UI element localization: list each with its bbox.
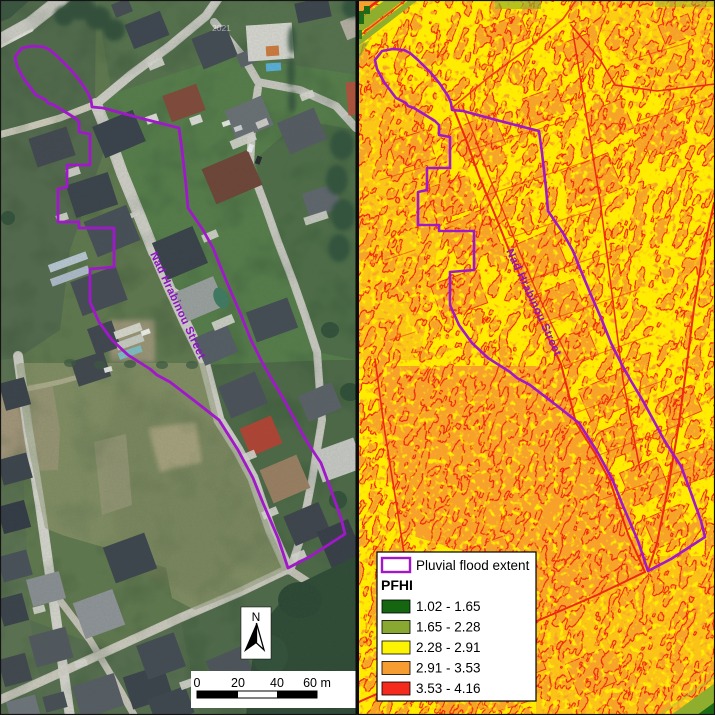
svg-text:2.91 - 3.53: 2.91 - 3.53 — [416, 661, 481, 676]
svg-text:2021: 2021 — [212, 23, 231, 33]
svg-text:60 m: 60 m — [303, 676, 331, 690]
svg-text:2.28 - 2.91: 2.28 - 2.91 — [416, 640, 481, 655]
svg-text:20: 20 — [231, 676, 245, 690]
svg-text:PFHI: PFHI — [381, 577, 413, 593]
svg-text:1.65 - 2.28: 1.65 - 2.28 — [416, 620, 481, 635]
svg-text:1.02 - 1.65: 1.02 - 1.65 — [416, 599, 481, 614]
svg-text:N: N — [252, 610, 261, 624]
svg-text:3.53 - 4.16: 3.53 - 4.16 — [416, 681, 481, 696]
svg-text:0: 0 — [194, 676, 201, 690]
svg-text:Pluvial flood extent: Pluvial flood extent — [416, 558, 530, 573]
svg-text:40: 40 — [270, 676, 284, 690]
